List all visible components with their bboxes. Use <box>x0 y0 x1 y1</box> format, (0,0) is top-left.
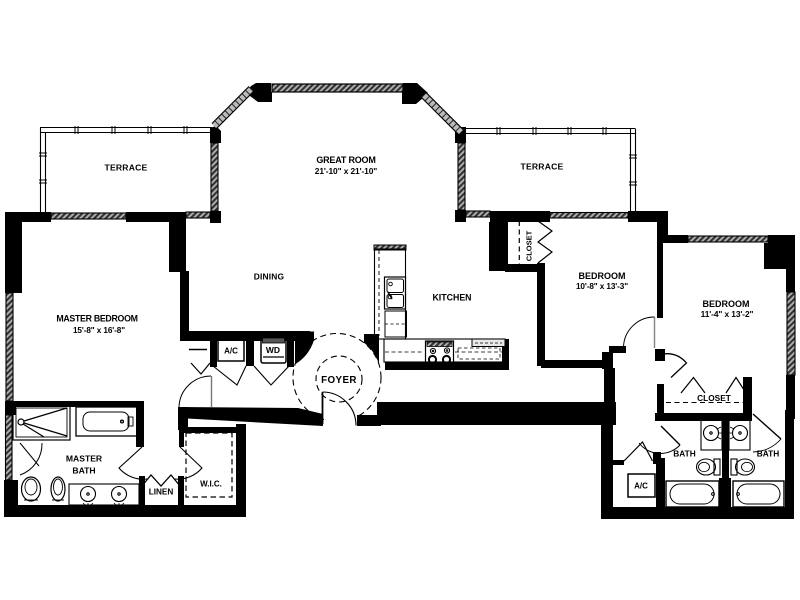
svg-text:A/C: A/C <box>634 482 648 491</box>
svg-text:10'-8" x 13'-3": 10'-8" x 13'-3" <box>576 282 628 291</box>
svg-text:W.I.C.: W.I.C. <box>200 480 222 489</box>
svg-text:DINING: DINING <box>254 272 285 282</box>
svg-text:TERRACE: TERRACE <box>521 162 564 172</box>
svg-text:CLOSET: CLOSET <box>525 230 534 261</box>
svg-text:BATH: BATH <box>673 449 695 459</box>
svg-text:21'-10" x 21'-10": 21'-10" x 21'-10" <box>315 166 378 176</box>
svg-text:LINEN: LINEN <box>149 488 174 497</box>
svg-text:CLOSET: CLOSET <box>697 393 731 403</box>
svg-text:11'-4" x 13'-2": 11'-4" x 13'-2" <box>701 309 754 319</box>
svg-text:BEDROOM: BEDROOM <box>579 271 626 281</box>
svg-text:MASTER BEDROOM: MASTER BEDROOM <box>56 314 137 324</box>
svg-text:KITCHEN: KITCHEN <box>432 293 471 303</box>
svg-text:BATH: BATH <box>72 466 95 476</box>
svg-text:BEDROOM: BEDROOM <box>703 299 750 309</box>
svg-text:GREAT ROOM: GREAT ROOM <box>316 155 375 165</box>
svg-text:15'-8" x 16'-8": 15'-8" x 16'-8" <box>73 326 125 335</box>
svg-text:WD: WD <box>266 345 280 355</box>
svg-text:BATH: BATH <box>757 449 779 459</box>
svg-text:A/C: A/C <box>224 347 238 356</box>
svg-text:FOYER: FOYER <box>321 375 357 386</box>
svg-text:TERRACE: TERRACE <box>105 163 148 173</box>
svg-text:MASTER: MASTER <box>66 454 103 464</box>
